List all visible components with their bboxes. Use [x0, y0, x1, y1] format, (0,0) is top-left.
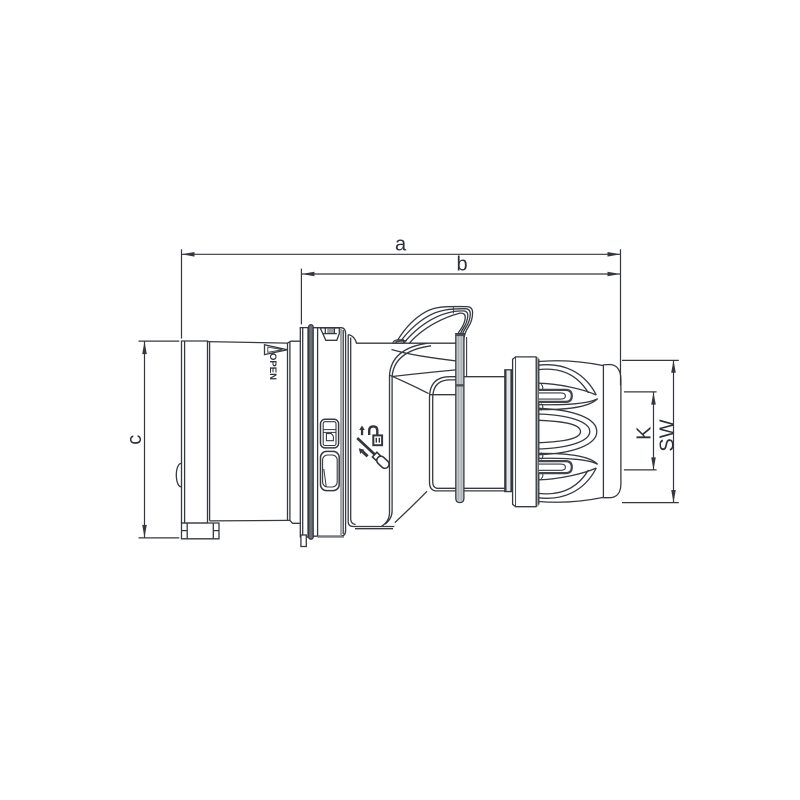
svg-text:K: K	[633, 426, 655, 440]
svg-text:c: c	[124, 435, 146, 445]
svg-text:b: b	[456, 254, 467, 276]
svg-text:SW: SW	[656, 419, 678, 451]
svg-text:a: a	[395, 234, 407, 256]
svg-text:OPEN: OPEN	[267, 353, 278, 380]
